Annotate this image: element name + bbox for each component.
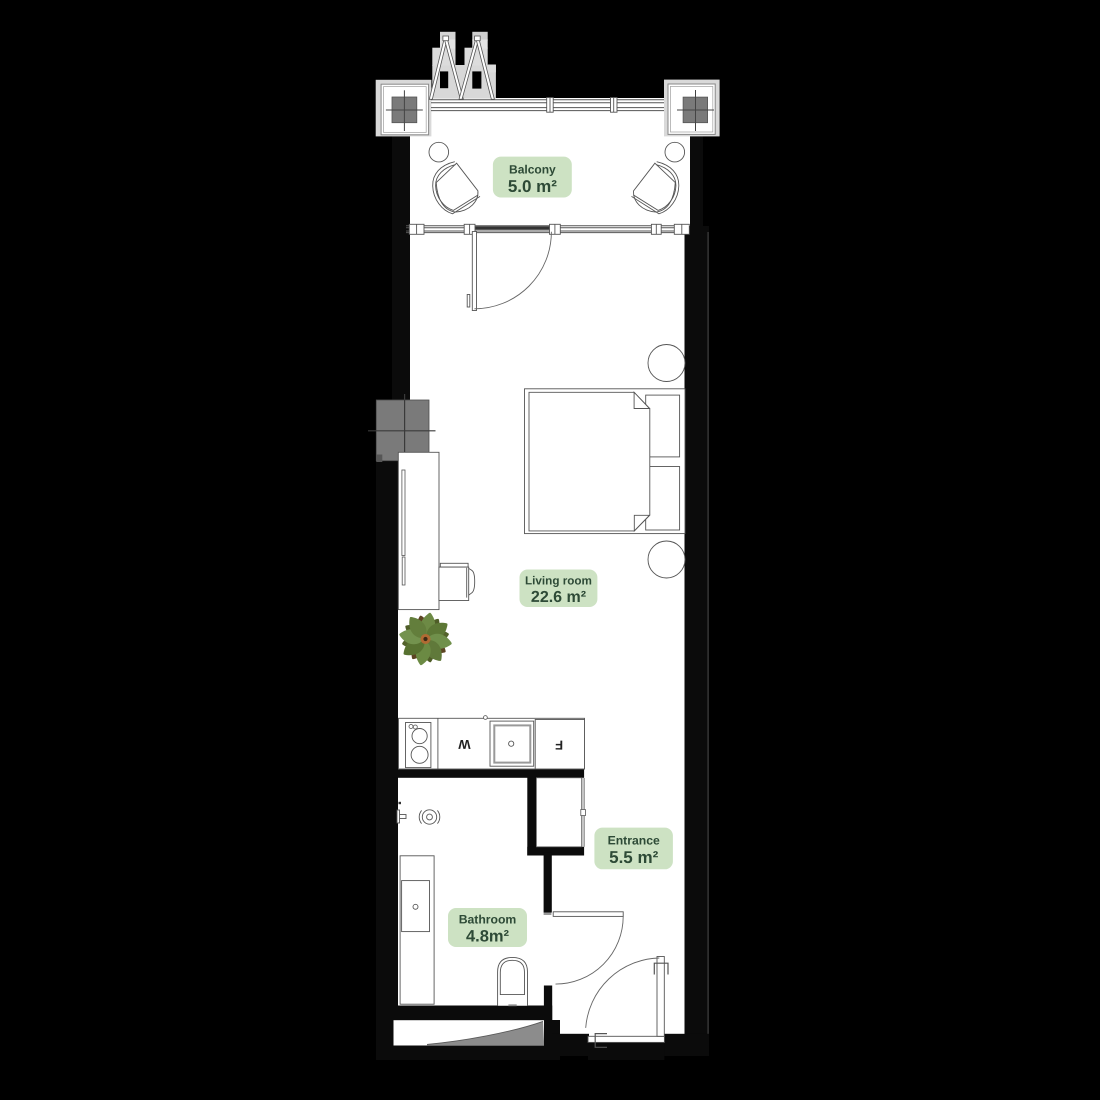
svg-text:5.0 m²: 5.0 m² xyxy=(508,177,558,196)
svg-text:Bathroom: Bathroom xyxy=(459,912,517,926)
svg-text:4.8m²: 4.8m² xyxy=(466,927,510,945)
svg-text:Living room: Living room xyxy=(525,574,592,587)
svg-text:22.6 m²: 22.6 m² xyxy=(531,589,586,606)
svg-text:Balcony: Balcony xyxy=(509,162,556,176)
svg-text:F: F xyxy=(555,738,563,753)
svg-text:W: W xyxy=(458,737,471,752)
svg-text:Entrance: Entrance xyxy=(608,833,660,847)
svg-text:5.5 m²: 5.5 m² xyxy=(609,848,659,867)
